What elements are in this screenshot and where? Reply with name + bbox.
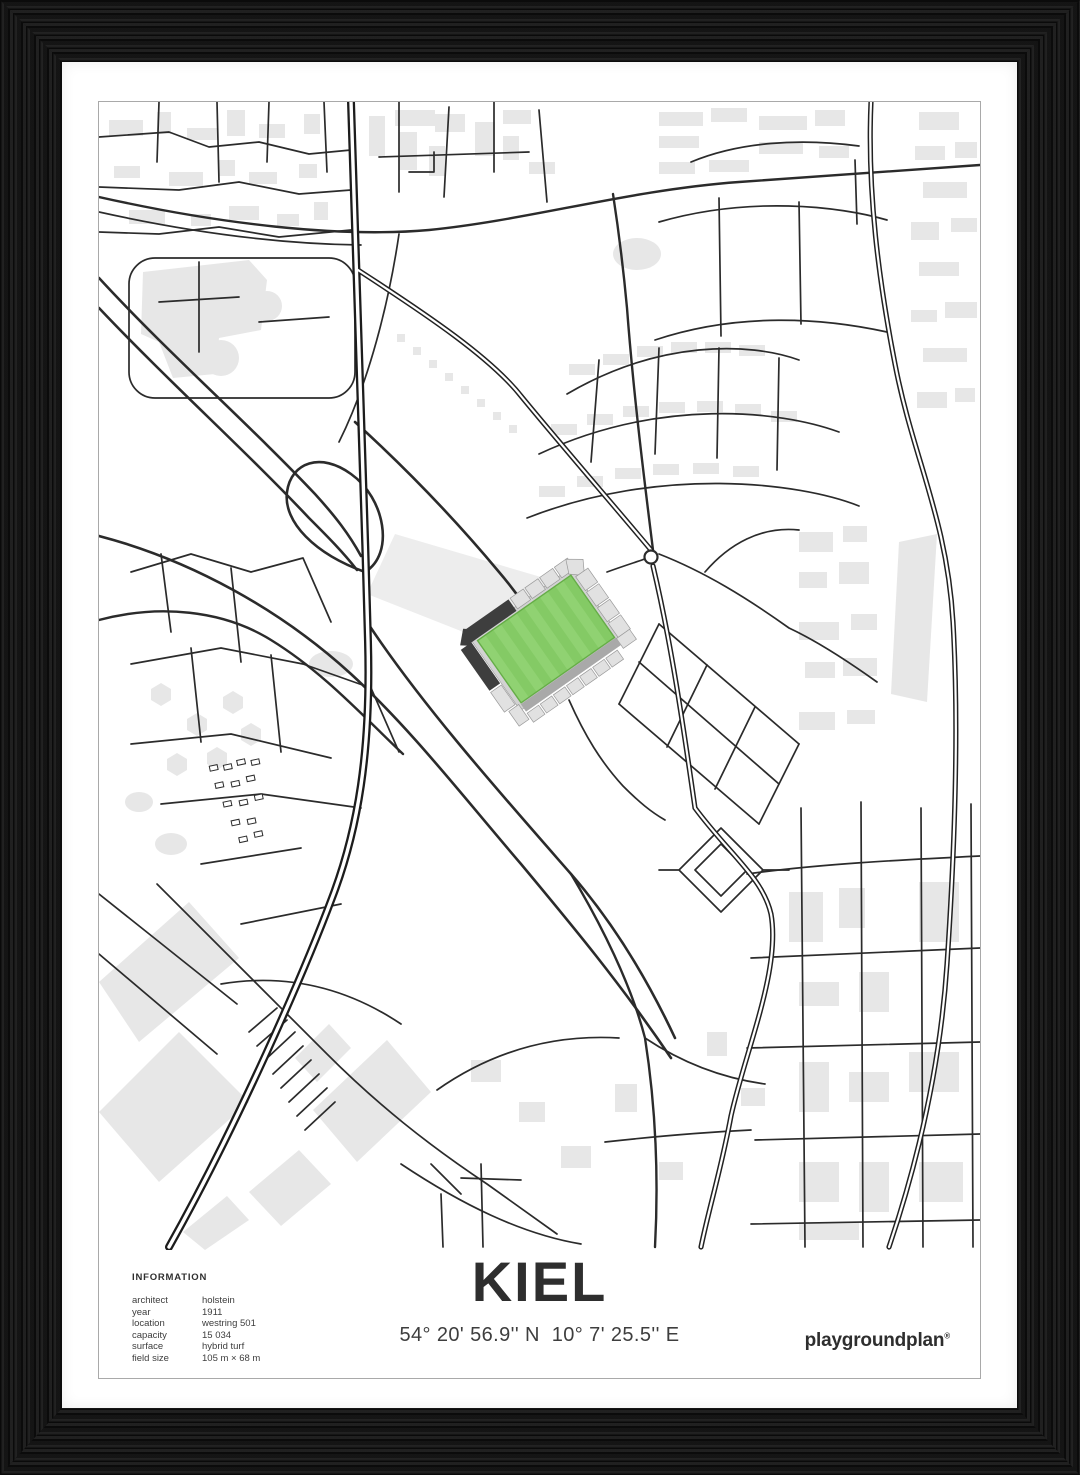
allotment-huts [209, 756, 275, 846]
frame-right [1017, 0, 1080, 1475]
brand-logo: playgroundplan® [805, 1330, 950, 1352]
info-row: field size105 m × 68 m [132, 1353, 260, 1365]
city-map [99, 102, 980, 1250]
page-title: KIEL [99, 1254, 980, 1310]
poster-print-area: INFORMATION architectholstein year1911 l… [98, 101, 981, 1379]
framed-poster: INFORMATION architectholstein year1911 l… [0, 0, 1080, 1475]
roundabout [645, 551, 658, 564]
frame-left [0, 0, 62, 1475]
registered-mark: ® [944, 1332, 950, 1341]
poster-paper: INFORMATION architectholstein year1911 l… [62, 62, 1017, 1408]
frame-top [0, 0, 1080, 62]
frame-bottom [0, 1408, 1080, 1475]
